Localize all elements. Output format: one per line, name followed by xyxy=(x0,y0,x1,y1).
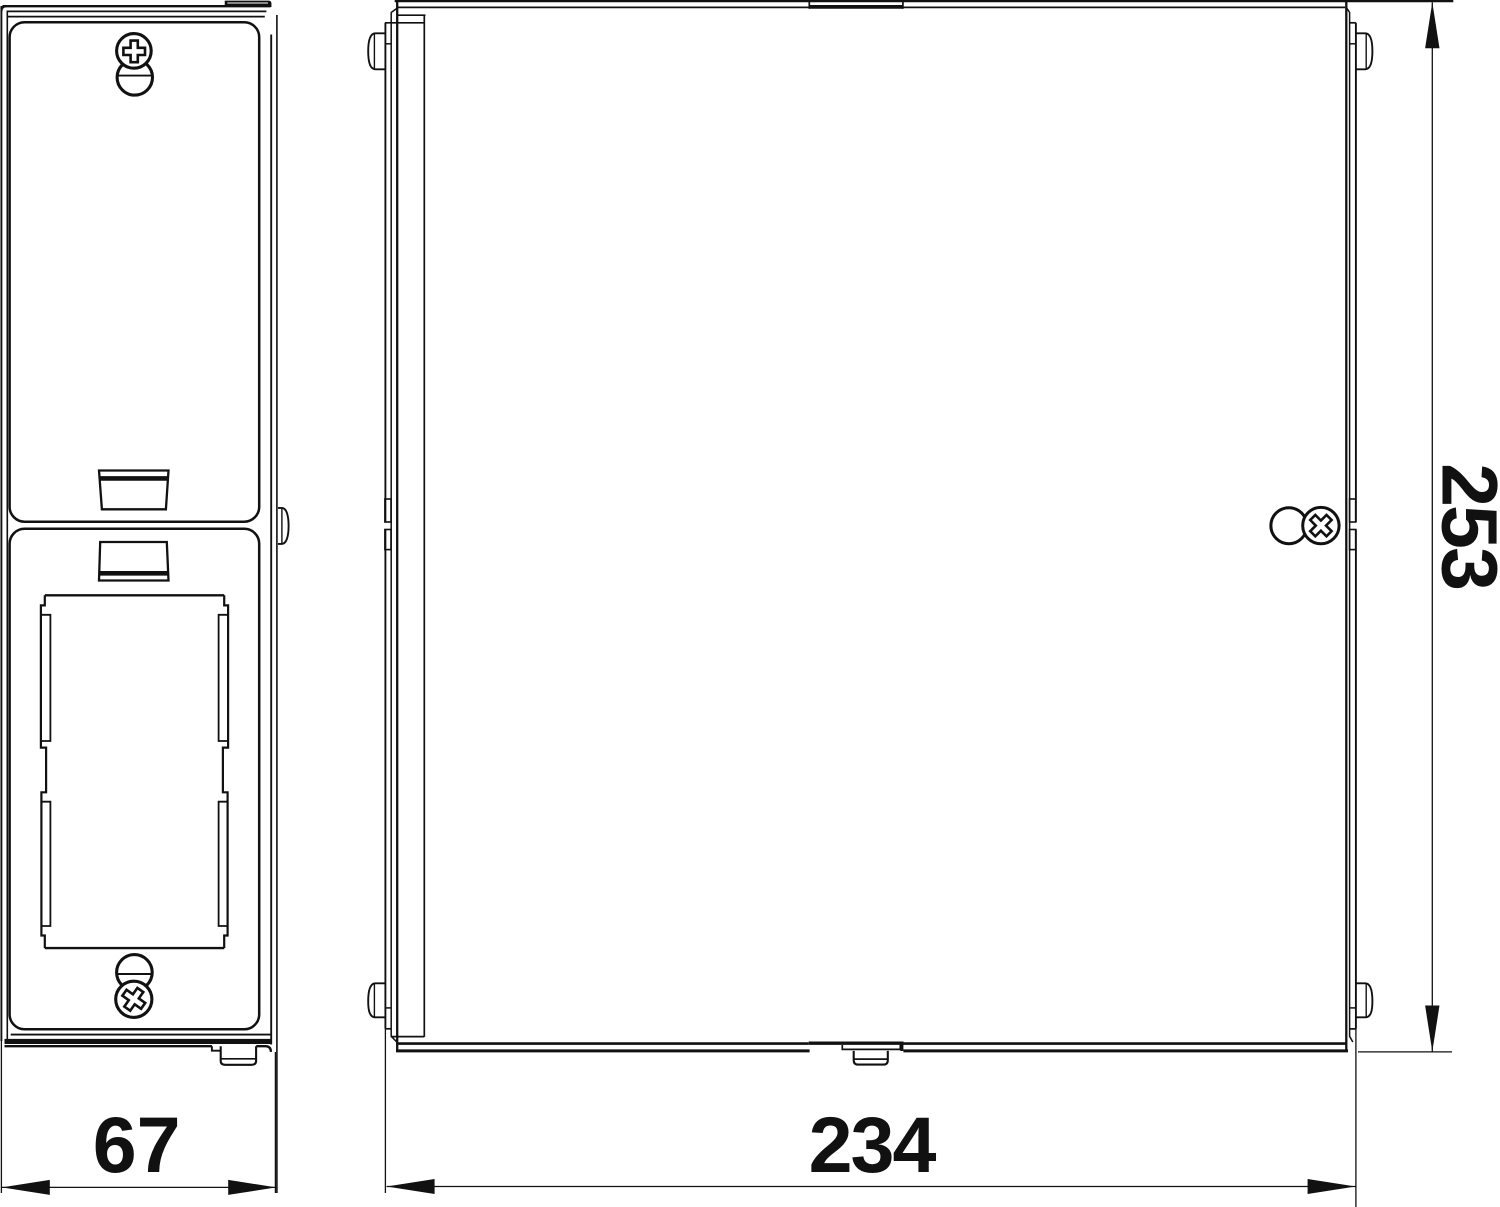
svg-text:253: 253 xyxy=(1426,463,1500,589)
svg-text:67: 67 xyxy=(93,1100,181,1189)
svg-text:234: 234 xyxy=(809,1100,937,1189)
